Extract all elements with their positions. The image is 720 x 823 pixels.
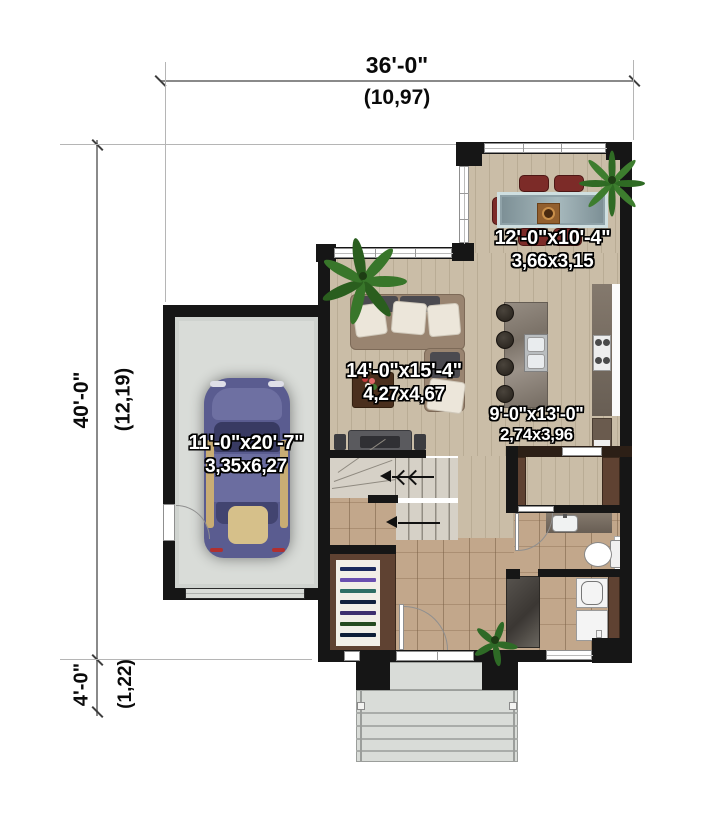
kitchen-label: 9'-0"x13'-0" 2,74x3,96 [444, 404, 629, 445]
car-headlight [268, 381, 284, 387]
kitchen-size-metric: 2,74x3,96 [444, 425, 629, 445]
dim-height-imperial: 40'-0" [70, 330, 94, 470]
wall-closet-top [324, 545, 396, 554]
porch-step-line [356, 712, 518, 714]
sink-basin [527, 337, 545, 352]
corner-post [456, 142, 482, 166]
dim-porch-metric: (1,22) [115, 646, 137, 722]
living-size-imperial: 14'-0"x15'-4" [314, 360, 494, 384]
toilet-bowl [584, 542, 612, 567]
bar-stool [496, 358, 514, 376]
porch-step-line [356, 738, 518, 740]
dim-height-metric: (12,19) [113, 330, 136, 470]
dim-width-metric: (10,97) [297, 86, 497, 110]
garage-label: 11'-0"x20'-7" 3,35x6,27 [156, 432, 336, 478]
washer-lid [581, 581, 603, 605]
porch-post [509, 702, 517, 710]
centerpiece-bowl [542, 207, 555, 220]
extension-line [165, 62, 166, 302]
dining-size-imperial: 12'-0"x10'-4" [460, 227, 645, 251]
wall-stub [506, 569, 520, 579]
mudroom-door-gap [562, 447, 602, 456]
car-trunk-deck [228, 506, 268, 544]
extension-line [60, 659, 312, 660]
porch-wall-right [482, 662, 518, 690]
dimension-left-line [96, 140, 98, 716]
stair-arrow-head [380, 470, 391, 482]
living-size-metric: 4,27x4,67 [314, 384, 494, 406]
bath-door-leaf [515, 513, 519, 551]
mudroom-cabinet-right [602, 457, 620, 506]
burner [595, 339, 602, 346]
stair-divider [368, 495, 398, 503]
porch-landing [388, 662, 484, 690]
stair-arrow-head [386, 516, 397, 528]
bottom-window-left [344, 651, 360, 661]
living-label: 14'-0"x15'-4" 4,27x4,67 [314, 360, 494, 406]
stair-arrow-line [398, 522, 440, 524]
sofa-pillow [427, 303, 462, 338]
sink-basin [527, 354, 545, 369]
garage-side-door [163, 504, 175, 541]
wall-entry-mudroom [506, 446, 518, 512]
porch-post [357, 702, 365, 710]
car-hood [212, 388, 282, 420]
front-door-unit [396, 651, 474, 661]
wall-bath-laundry [538, 569, 632, 577]
porch-wall-left [356, 662, 390, 690]
dryer-detail [596, 630, 602, 638]
speaker [414, 434, 426, 450]
burner [603, 357, 610, 364]
dining-top-window [484, 143, 606, 153]
dining-size-metric: 3,66x3,15 [460, 251, 645, 273]
car-taillight [272, 548, 285, 552]
dining-label: 12'-0"x10'-4" 3,66x3,15 [460, 227, 645, 273]
dim-width-imperial: 36'-0" [297, 52, 497, 79]
burner [603, 339, 610, 346]
bar-stool [496, 331, 514, 349]
shower [506, 576, 540, 648]
wall-right [620, 142, 632, 662]
garage-wall-top [163, 305, 330, 317]
dim-porch-imperial: 4'-0" [71, 647, 94, 723]
car-headlight [210, 381, 226, 387]
porch-rail-right [513, 690, 515, 762]
extension-line [633, 60, 634, 140]
extension-line [60, 144, 456, 145]
wall-bottom-right-block [592, 638, 632, 663]
garage-size-metric: 3,35x6,27 [156, 456, 336, 478]
porch-step-line [356, 725, 518, 727]
dimension-top-line [160, 80, 634, 82]
bar-stool [496, 304, 514, 322]
bottom-window-right [546, 650, 592, 660]
porch-step-line [356, 750, 518, 752]
bath-door-gap [518, 506, 554, 512]
garage-door [185, 588, 305, 599]
laundry-cabinet [608, 572, 620, 648]
porch-rail-left [360, 690, 362, 762]
bar-stool [496, 385, 514, 403]
burner [595, 357, 602, 364]
counter-white-strip [612, 284, 620, 416]
bath-faucet [563, 514, 567, 518]
dining-chair [519, 175, 549, 192]
front-door-leaf [399, 604, 404, 650]
kitchen-size-imperial: 9'-0"x13'-0" [444, 404, 629, 425]
floor-plan: 11'-0"x20'-7" 3,35x6,27 14'-0"x15'-4" 4,… [0, 0, 720, 823]
car-taillight [210, 548, 223, 552]
closet-rod-area [336, 560, 380, 646]
sofa-pillow [391, 301, 428, 336]
garage-size-imperial: 11'-0"x20'-7" [156, 432, 336, 456]
dryer [576, 610, 608, 641]
wall-stair [330, 450, 426, 458]
